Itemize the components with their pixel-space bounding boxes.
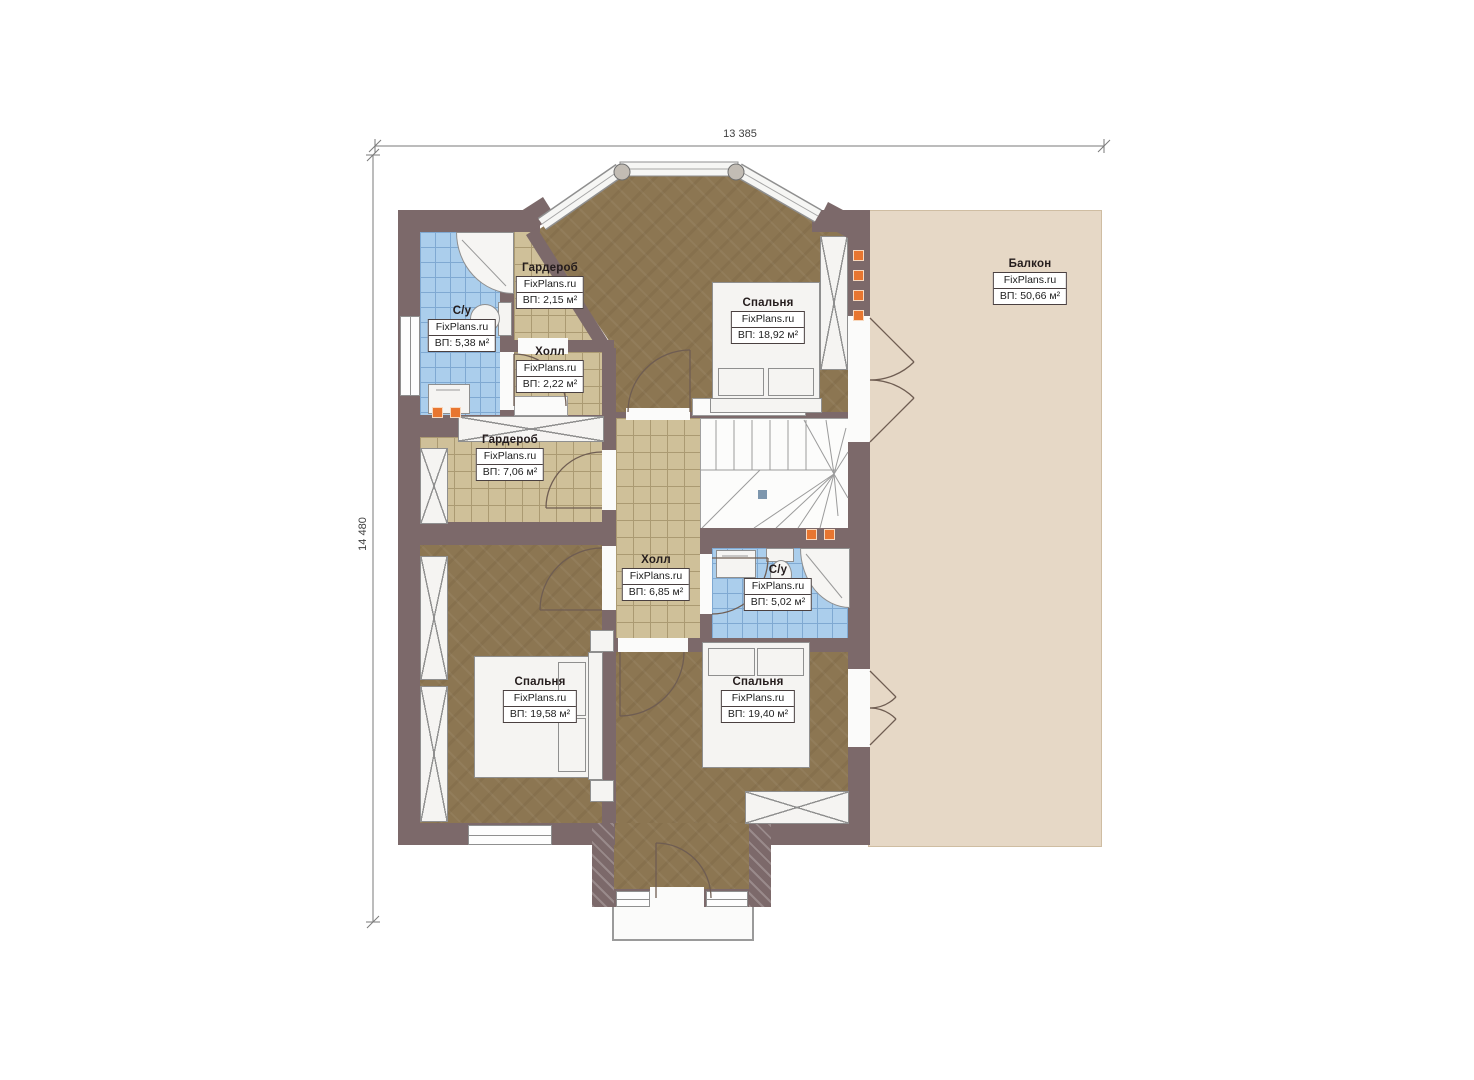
room-floor-porch: [614, 823, 749, 889]
vent-marker: [824, 529, 835, 540]
room-title: Спальня: [721, 676, 795, 688]
room-area: ВП: 2,22 м²: [517, 377, 583, 392]
room-area: ВП: 5,38 м²: [429, 336, 495, 351]
room-label-wardrobe-small: Гардероб FixPlans.ru ВП: 2,15 м²: [516, 262, 584, 309]
room-label-bedroom-top: Спальня FixPlans.ru ВП: 18,92 м²: [731, 297, 805, 344]
door-opening: [700, 554, 712, 614]
room-floor-balcony: [868, 210, 1102, 847]
watermark: FixPlans.ru: [477, 449, 543, 465]
room-label-wardrobe-big: Гардероб FixPlans.ru ВП: 7,06 м²: [476, 434, 544, 481]
room-label-balcony: Балкон FixPlans.ru ВП: 50,66 м²: [993, 258, 1067, 305]
stairwell-area: [700, 418, 850, 530]
watermark: FixPlans.ru: [429, 320, 495, 336]
pillow: [768, 368, 814, 396]
toilet-tank: [498, 302, 512, 336]
wall: [602, 348, 616, 418]
dimension-width-label: 13 385: [723, 128, 757, 140]
wardrobe-box: [820, 236, 848, 370]
dimension-height-label: 14 480: [357, 509, 369, 559]
door-opening: [650, 887, 704, 909]
room-title: Гардероб: [476, 434, 544, 446]
room-title: Балкон: [993, 258, 1067, 270]
room-title: Спальня: [503, 676, 577, 688]
door-opening: [626, 408, 690, 420]
door-opening: [602, 546, 616, 610]
room-label-hall-small: Холл FixPlans.ru ВП: 2,22 м²: [516, 346, 584, 393]
balcony-door-opening: [848, 316, 870, 442]
room-area: ВП: 19,40 м²: [722, 707, 794, 722]
room-title: С/у: [428, 305, 496, 317]
room-title: Холл: [516, 346, 584, 358]
watermark: FixPlans.ru: [517, 277, 583, 293]
wardrobe-box: [745, 791, 849, 824]
pillow: [718, 368, 764, 396]
room-label-hall-main: Холл FixPlans.ru ВП: 6,85 м²: [622, 554, 690, 601]
window: [616, 891, 650, 907]
room-area: ВП: 6,85 м²: [623, 585, 689, 600]
bed-headboard: [710, 398, 822, 413]
room-area: ВП: 50,66 м²: [994, 289, 1066, 304]
room-area: ВП: 18,92 м²: [732, 328, 804, 343]
wall: [749, 823, 771, 907]
door-opening: [602, 450, 616, 510]
threshold: [514, 396, 568, 416]
wall: [812, 210, 870, 232]
vent-marker: [450, 407, 461, 418]
pillow: [708, 648, 755, 676]
wall: [398, 210, 540, 232]
room-floor-hall-main: [616, 418, 700, 638]
vent-marker: [806, 529, 817, 540]
watermark: FixPlans.ru: [623, 569, 689, 585]
room-area: ВП: 5,02 м²: [745, 595, 811, 610]
room-area: ВП: 19,58 м²: [504, 707, 576, 722]
room-label-su-bottom: С/у FixPlans.ru ВП: 5,02 м²: [744, 564, 812, 611]
watermark: FixPlans.ru: [994, 273, 1066, 289]
wardrobe-box: [420, 686, 448, 822]
room-title: Спальня: [731, 297, 805, 309]
room-label-su-top: С/у FixPlans.ru ВП: 5,38 м²: [428, 305, 496, 352]
watermark: FixPlans.ru: [745, 579, 811, 595]
door-opening: [500, 352, 514, 410]
watermark: FixPlans.ru: [517, 361, 583, 377]
room-title: С/у: [744, 564, 812, 576]
pillow: [558, 718, 586, 772]
vent-marker: [853, 250, 864, 261]
watermark: FixPlans.ru: [732, 312, 804, 328]
watermark: FixPlans.ru: [504, 691, 576, 707]
wall: [398, 210, 420, 845]
nightstand: [590, 780, 614, 802]
nightstand: [590, 630, 614, 652]
room-title: Холл: [622, 554, 690, 566]
window: [400, 316, 420, 396]
wall: [592, 823, 614, 907]
wall: [848, 210, 870, 845]
door-opening: [618, 638, 688, 652]
room-title: Гардероб: [516, 262, 584, 274]
wardrobe-box: [420, 556, 448, 680]
wardrobe-box: [420, 448, 448, 524]
room-area: ВП: 2,15 м²: [517, 293, 583, 308]
balcony-door-opening: [848, 669, 870, 747]
vent-marker: [853, 310, 864, 321]
room-label-bedroom-right: Спальня FixPlans.ru ВП: 19,40 м²: [721, 676, 795, 723]
vent-marker: [853, 270, 864, 281]
window: [706, 891, 748, 907]
watermark: FixPlans.ru: [722, 691, 794, 707]
room-area: ВП: 7,06 м²: [477, 465, 543, 480]
pillow: [757, 648, 804, 676]
vent-marker: [432, 407, 443, 418]
vent-marker: [853, 290, 864, 301]
floor-plan: 13 385 14 480 С/у FixPlans.ru ВП: 5,38 м…: [0, 0, 1474, 1080]
room-label-bedroom-left: Спальня FixPlans.ru ВП: 19,58 м²: [503, 676, 577, 723]
window: [468, 825, 552, 845]
wall: [420, 522, 602, 545]
bed-headboard: [588, 652, 603, 780]
